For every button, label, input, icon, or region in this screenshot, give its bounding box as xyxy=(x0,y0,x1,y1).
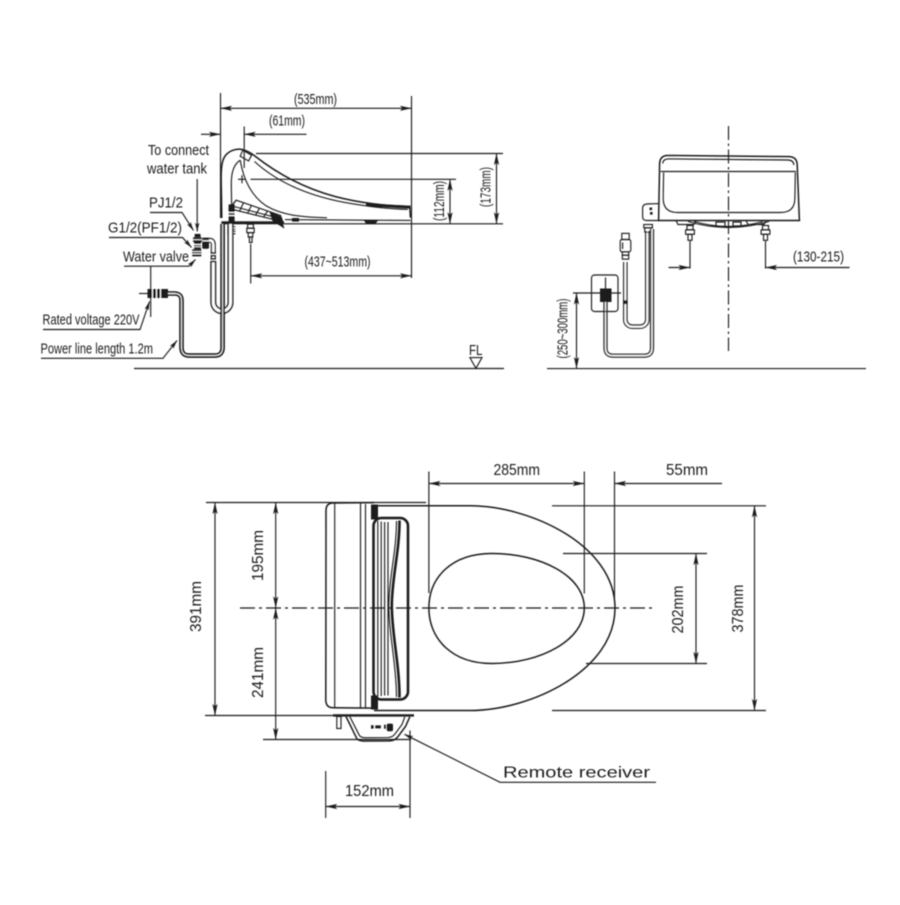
svg-text:55mm: 55mm xyxy=(666,462,708,479)
svg-text:Water valve: Water valve xyxy=(123,249,189,266)
svg-text:G1/2(PF1/2): G1/2(PF1/2) xyxy=(108,220,182,237)
svg-text:(112mm): (112mm) xyxy=(431,181,448,221)
svg-text:FL: FL xyxy=(469,342,483,359)
svg-text:(437~513mm): (437~513mm) xyxy=(305,254,371,271)
svg-text:Rated voltage 220V: Rated voltage 220V xyxy=(43,312,140,329)
svg-text:PJ1/2: PJ1/2 xyxy=(149,195,183,212)
svg-text:(61mm): (61mm) xyxy=(269,113,305,130)
svg-text:378mm: 378mm xyxy=(730,585,747,633)
svg-text:285mm: 285mm xyxy=(494,462,541,479)
svg-text:(250~300mm): (250~300mm) xyxy=(555,298,572,358)
svg-text:(130-215): (130-215) xyxy=(793,249,844,266)
svg-text:241mm: 241mm xyxy=(250,647,267,698)
svg-text:152mm: 152mm xyxy=(345,783,394,800)
svg-text:Remote receiver: Remote receiver xyxy=(503,765,651,782)
svg-text:202mm: 202mm xyxy=(670,586,687,634)
svg-text:391mm: 391mm xyxy=(188,581,205,632)
svg-text:To connect: To connect xyxy=(148,142,210,159)
svg-text:Power line length 1.2m: Power line length 1.2m xyxy=(41,341,154,358)
svg-text:water tank: water tank xyxy=(146,161,207,178)
svg-text:(535mm): (535mm) xyxy=(294,91,337,108)
svg-text:195mm: 195mm xyxy=(250,530,267,581)
svg-text:(173mm): (173mm) xyxy=(478,167,495,207)
